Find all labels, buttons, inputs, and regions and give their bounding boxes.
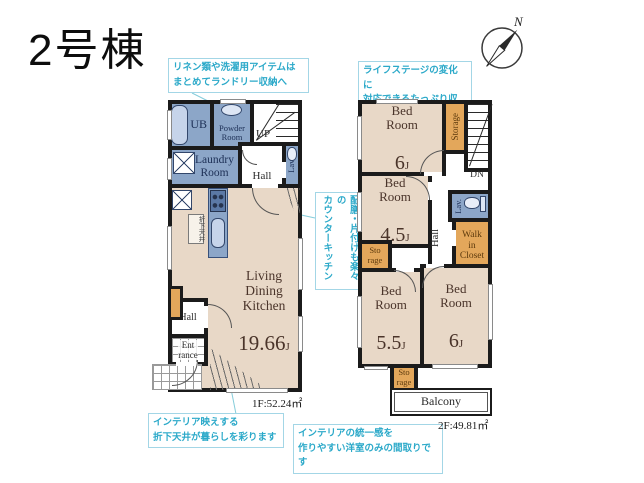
hall-closet [168,286,183,320]
dropped-ceiling-tag: 折下天井 [188,214,204,244]
window [298,238,303,290]
floor1-area-label: 1F:52.24㎡ [252,395,302,411]
page-title: 2号棟 [28,14,146,78]
powder-sink-fixture [221,104,242,116]
hall-2f-label: Hall [430,216,444,260]
window [488,284,493,340]
window [220,99,246,104]
unit-bath-label: UB [190,118,207,131]
window [298,316,303,352]
toilet-tank-2f [480,196,486,212]
window [432,364,478,369]
stairs-up: UP [250,100,302,146]
floor-plan-canvas: 2号棟 N リネン類や洗濯用アイテムは まとめてランドリー収納へ ライフステージ… [0,0,644,483]
window [167,226,172,270]
toilet-fixture-2f [464,197,480,209]
stair-diagonal [469,104,493,166]
ldk-label: Living Dining Kitchen 19.66J [222,250,306,372]
window [167,158,172,180]
lavatory-2f-label: Lav. [454,199,464,214]
stove-fixture [210,190,226,212]
bathtub-fixture [171,105,188,145]
laundry-room-label: Laundry Room [195,154,234,180]
ldk-name: Living Dining Kitchen [222,268,306,313]
stairs-down-label: DN [464,170,490,181]
stairs-up-label: UP [256,128,270,140]
powder-room-label: Powder Room [219,124,245,143]
entrance-label: Ent rance [178,340,197,360]
wall-gap [452,230,456,246]
wall-gap [282,162,286,178]
hall-upper-label: Hall [253,170,272,182]
window [357,192,362,232]
bed4-label: Bed Room 6J [440,264,472,369]
balcony-inner-rail: Balcony [394,392,488,412]
storage-bottom-label: Sto rage [397,368,412,387]
floor2-area-label: 2F:49.81㎡ [438,417,488,433]
compass-icon [470,12,534,76]
window [357,296,362,348]
walk-in-closet-label: Walk in Closet [460,230,484,262]
window [357,116,362,160]
storage-top-label: Storage [450,113,460,141]
note-unified-interior: インテリアの統一感を 作りやすい洋室のみの間取りです [293,424,443,474]
window [364,366,388,370]
note-dropped-ceiling: インテリア映えする 折下天井が暮らしを彩ります [148,413,284,448]
balcony-label: Balcony [421,395,461,408]
refrigerator-box [172,190,192,210]
window [167,110,172,140]
toilet-fixture-1f [287,147,297,161]
washing-machine-box [173,152,195,174]
storage-mid-label: Sto rage [368,246,383,265]
stairs-down [464,100,492,172]
kitchen-sink-fixture [211,218,225,248]
window [376,99,418,104]
note-laundry-storage: リネン類や洗濯用アイテムは まとめてランドリー収納へ [168,58,309,93]
window [226,388,288,393]
compass-north-label: N [514,14,523,30]
ldk-size: 19.66J [222,333,306,354]
balcony: Balcony [390,388,492,416]
